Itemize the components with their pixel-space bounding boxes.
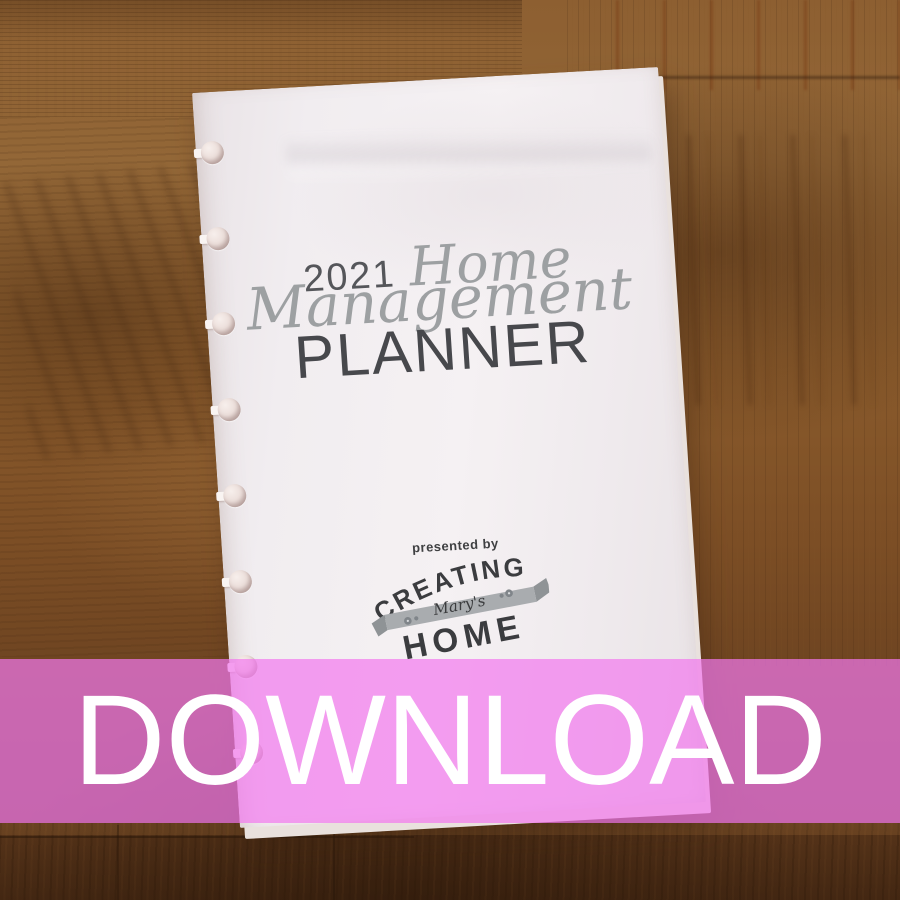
wood-plank-seam-vertical-2 (117, 825, 119, 900)
hole-circle (200, 140, 224, 164)
product-photo: 2021 Home Management PLANNER presented b… (0, 0, 900, 900)
creating-marys-home-logo: CREATING Mary's HOME (364, 543, 555, 671)
hole-circle (228, 569, 252, 593)
download-label: DOWNLOAD (73, 677, 827, 805)
binding-hole (218, 483, 259, 509)
binding-hole (223, 568, 264, 594)
wood-plank-seam-right (652, 76, 900, 79)
binding-hole (212, 397, 253, 423)
hole-circle (206, 226, 230, 250)
cover-title: 2021 Home Management PLANNER (202, 225, 677, 394)
binding-hole (195, 140, 236, 166)
binding-hole (201, 225, 242, 251)
hole-circle (223, 483, 247, 507)
download-banner[interactable]: DOWNLOAD (0, 659, 900, 823)
logo-graphic: CREATING Mary's HOME (364, 543, 554, 666)
hole-circle (217, 398, 241, 422)
paper-crease (285, 120, 652, 186)
